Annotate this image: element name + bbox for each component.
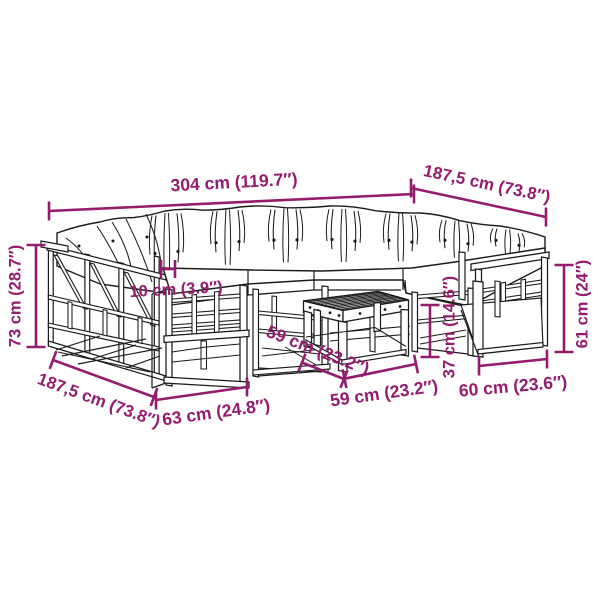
svg-text:61 cm (24″): 61 cm (24″) [574,260,592,349]
svg-text:37 cm (14.6″): 37 cm (14.6″) [441,276,459,378]
svg-text:73 cm (28.7″): 73 cm (28.7″) [7,245,25,347]
